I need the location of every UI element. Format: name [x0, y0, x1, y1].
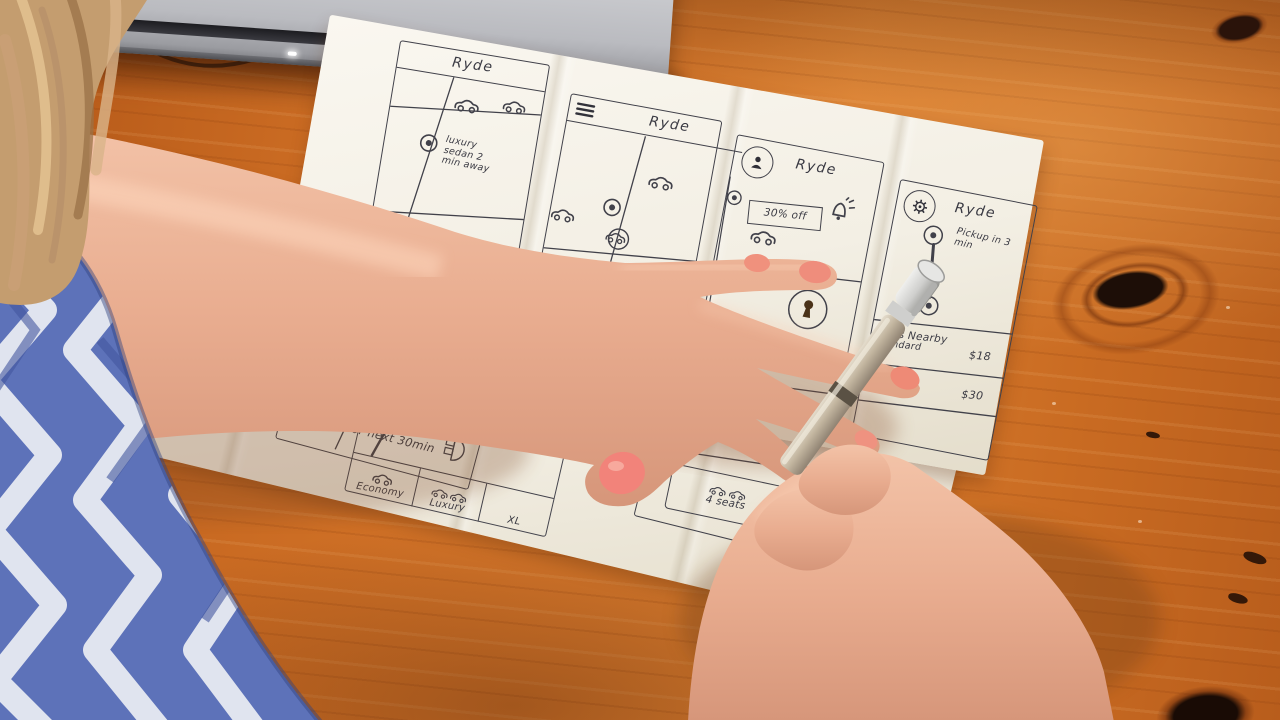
scene-photo-sketching-wireframes: now | 6pm luxury sedan 2 min. away 30% O…	[0, 0, 1280, 720]
route-end-dot	[925, 302, 932, 309]
location-pin-icon	[384, 406, 402, 424]
car-icon	[421, 420, 445, 435]
station-icon	[444, 447, 453, 455]
tab-xl-label: XL	[506, 514, 521, 527]
wood-speck	[1138, 520, 1142, 523]
time-bar-label: now | 6pm	[88, 352, 153, 378]
bell-icon	[832, 196, 856, 223]
divider-line	[692, 367, 839, 403]
keyhole-icon	[802, 300, 814, 319]
car-icon	[368, 220, 392, 235]
wood-speck	[1226, 306, 1230, 309]
location-pin-icon	[727, 190, 743, 206]
station-icon	[446, 439, 455, 447]
map-road	[373, 195, 524, 235]
car-icon	[551, 208, 574, 222]
divider-line	[699, 330, 846, 368]
laptop-sleep-led	[287, 51, 296, 56]
route-start-dot	[930, 232, 937, 239]
route-line	[923, 245, 939, 298]
map-road	[579, 132, 645, 378]
map-road	[544, 234, 696, 275]
map-road	[94, 251, 138, 346]
map-road	[390, 90, 541, 130]
car-icon	[643, 349, 666, 363]
station-icon	[402, 273, 414, 292]
location-pin-icon	[603, 198, 622, 217]
divider-line	[713, 254, 860, 293]
car-row-price: $18	[969, 349, 992, 363]
wood-speck	[1052, 402, 1056, 405]
poi-circle	[607, 227, 630, 250]
car-row-price: $30	[961, 389, 984, 403]
car-icon	[117, 305, 141, 321]
promo-label: 30% off	[763, 208, 807, 224]
car-icon	[649, 176, 673, 191]
wood-speck	[986, 558, 990, 561]
car-icon	[503, 101, 526, 115]
route-line	[372, 423, 389, 458]
car-icon	[751, 230, 776, 246]
